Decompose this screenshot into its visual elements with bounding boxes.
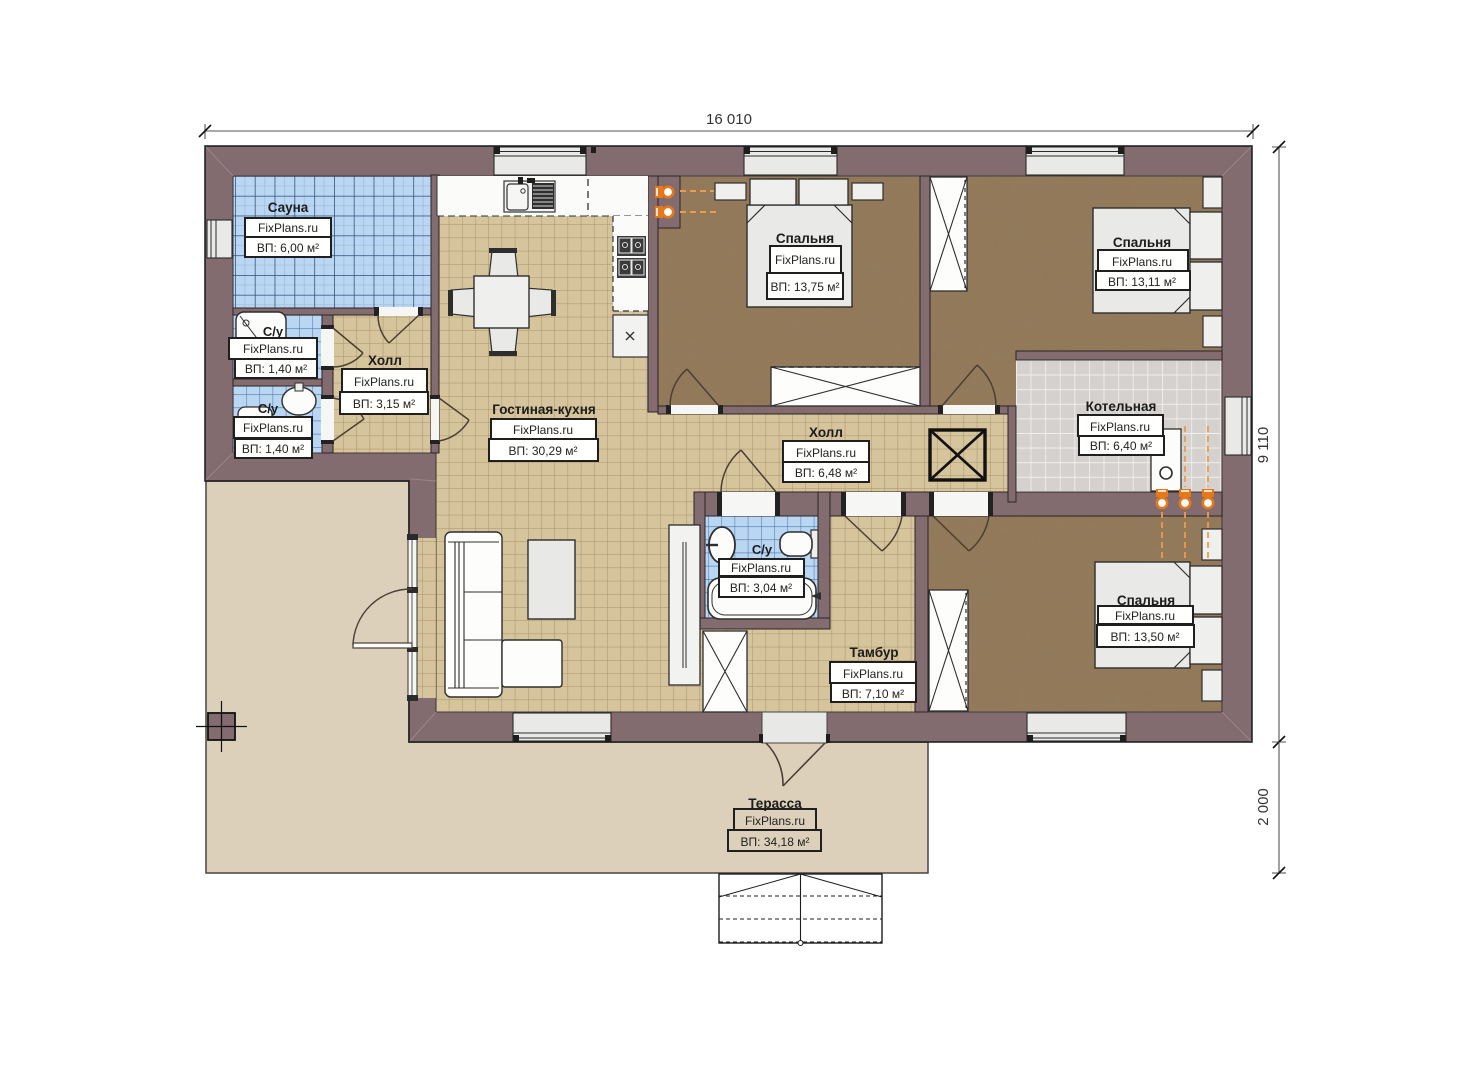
- svg-text:FixPlans.ru: FixPlans.ru: [243, 421, 303, 435]
- svg-text:FixPlans.ru: FixPlans.ru: [513, 423, 573, 437]
- svg-text:2 000: 2 000: [1255, 788, 1272, 826]
- svg-text:С/у: С/у: [752, 542, 773, 557]
- svg-text:С/у: С/у: [258, 401, 279, 416]
- svg-text:Котельная: Котельная: [1086, 399, 1157, 414]
- svg-text:ВП: 1,40 м²: ВП: 1,40 м²: [242, 442, 304, 456]
- svg-text:ВП: 3,04 м²: ВП: 3,04 м²: [730, 581, 792, 595]
- svg-text:FixPlans.ru: FixPlans.ru: [354, 375, 414, 389]
- svg-text:FixPlans.ru: FixPlans.ru: [775, 253, 835, 267]
- svg-text:С/у: С/у: [263, 324, 284, 339]
- svg-text:16 010: 16 010: [706, 111, 752, 128]
- svg-text:ВП: 13,75 м²: ВП: 13,75 м²: [771, 280, 840, 294]
- svg-text:FixPlans.ru: FixPlans.ru: [731, 561, 791, 575]
- svg-text:ВП: 13,50 м²: ВП: 13,50 м²: [1111, 630, 1180, 644]
- svg-text:Спальня: Спальня: [776, 231, 834, 246]
- svg-text:FixPlans.ru: FixPlans.ru: [258, 221, 318, 235]
- svg-text:Холл: Холл: [809, 425, 843, 440]
- svg-text:Холл: Холл: [368, 353, 402, 368]
- svg-text:ВП: 34,18 м²: ВП: 34,18 м²: [741, 835, 810, 849]
- svg-text:ВП: 1,40 м²: ВП: 1,40 м²: [245, 362, 307, 376]
- svg-text:FixPlans.ru: FixPlans.ru: [1115, 609, 1175, 623]
- svg-text:ВП: 7,10 м²: ВП: 7,10 м²: [842, 687, 904, 701]
- svg-text:ВП: 30,29 м²: ВП: 30,29 м²: [509, 444, 578, 458]
- svg-text:FixPlans.ru: FixPlans.ru: [1090, 420, 1150, 434]
- svg-text:FixPlans.ru: FixPlans.ru: [843, 667, 903, 681]
- svg-text:ВП: 13,11 м²: ВП: 13,11 м²: [1108, 275, 1176, 289]
- svg-text:FixPlans.ru: FixPlans.ru: [796, 446, 856, 460]
- svg-text:Тамбур: Тамбур: [850, 645, 899, 660]
- svg-text:ВП: 6,00 м²: ВП: 6,00 м²: [257, 241, 319, 255]
- svg-text:Сауна: Сауна: [268, 200, 309, 215]
- svg-text:ВП: 6,40 м²: ВП: 6,40 м²: [1090, 439, 1152, 453]
- svg-text:FixPlans.ru: FixPlans.ru: [745, 814, 805, 828]
- svg-text:ВП: 6,48 м²: ВП: 6,48 м²: [795, 466, 857, 480]
- svg-text:Спальня: Спальня: [1113, 235, 1171, 250]
- svg-text:ВП: 3,15 м²: ВП: 3,15 м²: [353, 397, 415, 411]
- svg-text:FixPlans.ru: FixPlans.ru: [243, 342, 303, 356]
- svg-text:9 110: 9 110: [1255, 427, 1272, 463]
- svg-text:FixPlans.ru: FixPlans.ru: [1112, 255, 1172, 269]
- svg-text:Гостиная-кухня: Гостиная-кухня: [492, 402, 595, 417]
